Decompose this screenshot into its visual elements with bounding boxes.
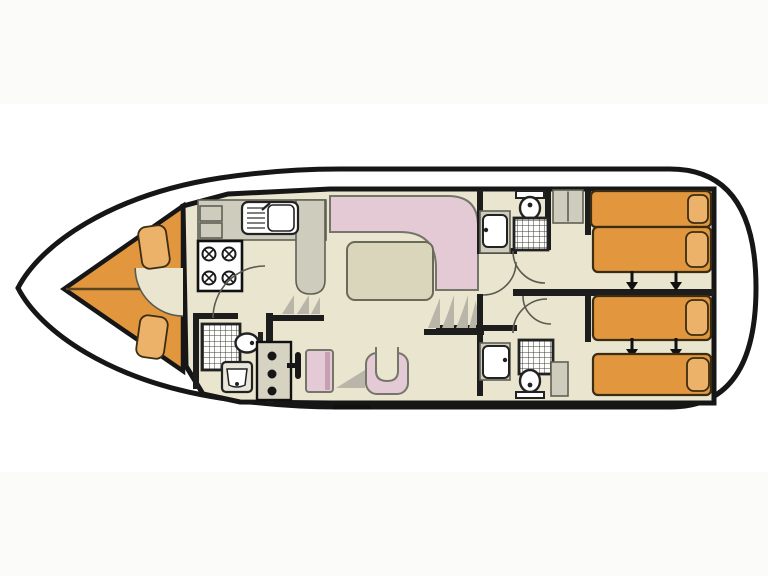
galley-locker bbox=[200, 206, 222, 221]
boarding-step bbox=[333, 405, 371, 410]
shower bbox=[514, 218, 548, 250]
page-band-bottom bbox=[0, 472, 768, 576]
dining-table bbox=[347, 242, 433, 300]
washbasin bbox=[483, 346, 509, 378]
wall-segment bbox=[193, 313, 199, 389]
wall-segment bbox=[193, 313, 238, 319]
burner-icon bbox=[203, 248, 216, 261]
washbasin bbox=[483, 215, 507, 247]
boat-floor-plan-canvas bbox=[0, 0, 768, 576]
wardrobe bbox=[553, 190, 583, 223]
sink-basin bbox=[268, 205, 294, 231]
wall-segment bbox=[266, 315, 324, 321]
wall-segment bbox=[477, 325, 517, 331]
bow-cushion bbox=[135, 314, 169, 359]
shower bbox=[519, 340, 553, 374]
burner-icon bbox=[223, 248, 236, 261]
bow-cushion bbox=[137, 224, 171, 269]
washbasin bbox=[222, 362, 252, 392]
galley-locker bbox=[200, 223, 222, 238]
galley-counter-peninsula bbox=[296, 200, 325, 294]
helm-station bbox=[257, 342, 408, 400]
storage-cabinet bbox=[551, 362, 568, 396]
wall-segment bbox=[477, 294, 483, 327]
bed-pillow bbox=[686, 300, 708, 335]
burner-icon bbox=[203, 272, 216, 285]
wall-segment bbox=[585, 296, 591, 342]
console-knob bbox=[268, 387, 277, 396]
console-knob bbox=[268, 370, 277, 379]
pilot-seat bbox=[306, 350, 333, 392]
bed-pillow bbox=[687, 358, 709, 391]
page-band-top bbox=[0, 0, 768, 104]
console-knob bbox=[268, 352, 277, 361]
floor-plan-svg bbox=[0, 0, 768, 576]
bed-pillow bbox=[688, 195, 708, 223]
stove bbox=[198, 241, 242, 291]
u-shaped-seat bbox=[366, 347, 408, 394]
burner-icon bbox=[223, 272, 236, 285]
wall-segment bbox=[424, 329, 484, 335]
galley-sink bbox=[242, 202, 298, 234]
bed-pillow bbox=[686, 232, 708, 267]
